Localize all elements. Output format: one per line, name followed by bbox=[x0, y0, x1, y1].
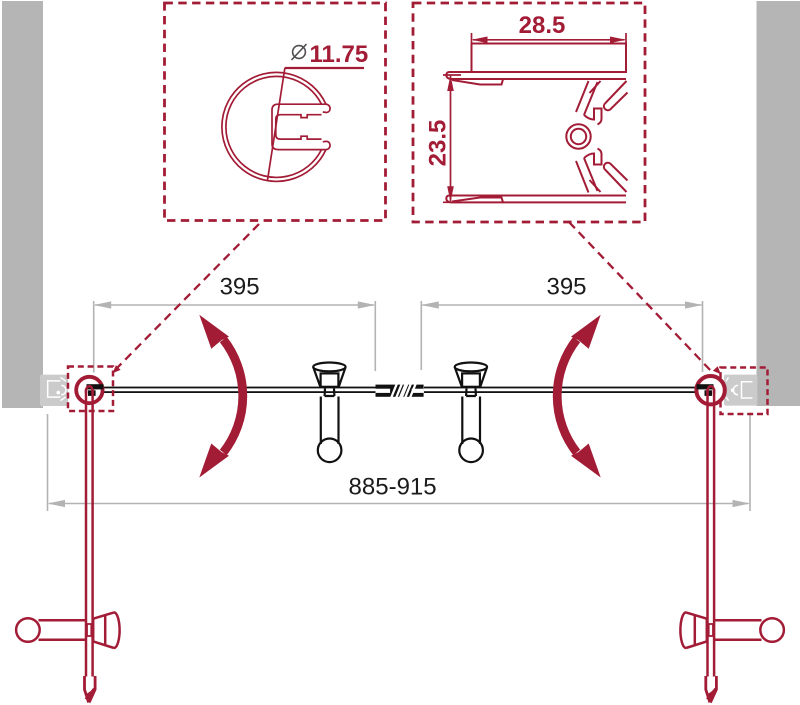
svg-text:395: 395 bbox=[220, 274, 260, 301]
svg-text:28.5: 28.5 bbox=[519, 12, 566, 39]
svg-text:885-915: 885-915 bbox=[349, 474, 437, 501]
svg-text:395: 395 bbox=[546, 274, 586, 301]
svg-text:23.5: 23.5 bbox=[425, 120, 452, 167]
svg-text:11.75: 11.75 bbox=[310, 41, 369, 68]
